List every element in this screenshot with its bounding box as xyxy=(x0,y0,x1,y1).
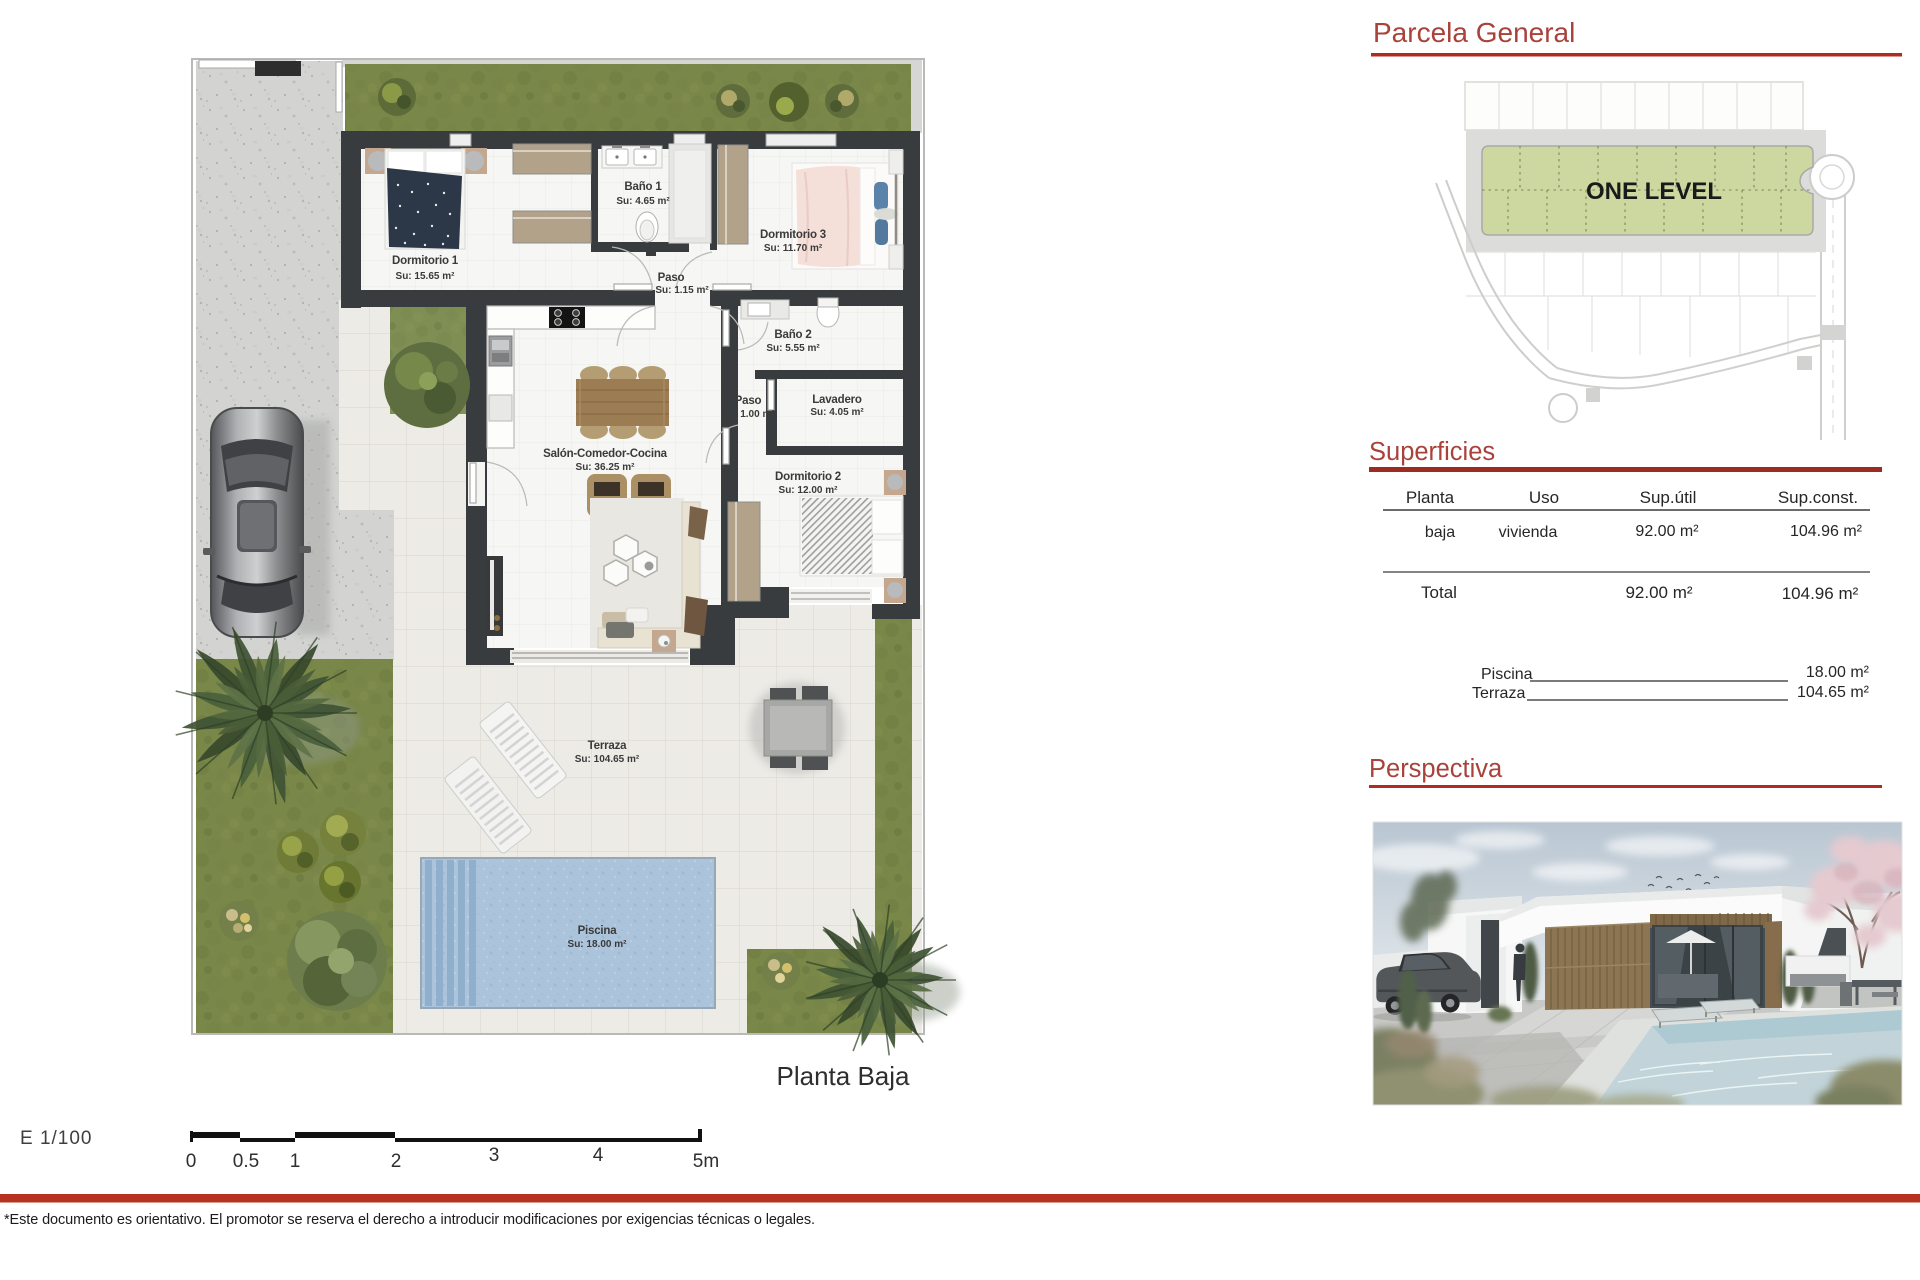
svg-text:Su: 5.55 m²: Su: 5.55 m² xyxy=(766,343,820,354)
svg-text:Lavadero: Lavadero xyxy=(812,394,862,406)
svg-text:Dormitorio 3: Dormitorio 3 xyxy=(760,229,826,241)
svg-text:Planta Baja: Planta Baja xyxy=(777,1061,911,1091)
svg-text:Su: 36.25 m²: Su: 36.25 m² xyxy=(576,462,636,473)
svg-text:Su: 4.05 m²: Su: 4.05 m² xyxy=(810,407,864,418)
svg-text:104.96 m²: 104.96 m² xyxy=(1782,584,1859,603)
svg-text:92.00 m²: 92.00 m² xyxy=(1625,583,1692,602)
svg-text:5m: 5m xyxy=(693,1151,719,1172)
svg-text:Su: 104.65 m²: Su: 104.65 m² xyxy=(575,754,640,765)
svg-text:Su: 1.15 m²: Su: 1.15 m² xyxy=(655,285,709,296)
svg-text:Paso: Paso xyxy=(735,395,762,407)
svg-text:Planta: Planta xyxy=(1406,488,1455,507)
svg-text:Sup.const.: Sup.const. xyxy=(1778,488,1858,507)
svg-text:Piscina: Piscina xyxy=(578,925,618,937)
svg-text:3: 3 xyxy=(489,1145,500,1166)
svg-text:Su: 4.65 m²: Su: 4.65 m² xyxy=(616,196,670,207)
svg-text:0.5: 0.5 xyxy=(233,1151,259,1172)
svg-text:Superficies: Superficies xyxy=(1369,438,1495,466)
svg-text:1: 1 xyxy=(290,1151,301,1172)
svg-text:Baño 2: Baño 2 xyxy=(774,329,811,341)
svg-text:baja: baja xyxy=(1425,524,1455,541)
svg-text:Salón-Comedor-Cocina: Salón-Comedor-Cocina xyxy=(543,448,668,460)
svg-text:2: 2 xyxy=(391,1151,402,1172)
svg-text:Su: 15.65 m²: Su: 15.65 m² xyxy=(396,271,456,282)
svg-text:Perspectiva: Perspectiva xyxy=(1369,755,1503,783)
svg-text:Dormitorio 2: Dormitorio 2 xyxy=(775,471,841,483)
svg-text:Terraza: Terraza xyxy=(588,740,627,752)
svg-text:Uso: Uso xyxy=(1529,488,1559,507)
svg-text:*Este documento es orientativo: *Este documento es orientativo. El promo… xyxy=(4,1212,815,1228)
svg-text:Piscina: Piscina xyxy=(1481,666,1533,683)
svg-text:Su: 12.00 m²: Su: 12.00 m² xyxy=(779,485,839,496)
svg-text:Su: 11.70 m²: Su: 11.70 m² xyxy=(764,243,823,254)
svg-text:92.00 m²: 92.00 m² xyxy=(1635,523,1699,540)
svg-text:Total: Total xyxy=(1421,583,1457,602)
svg-text:Parcela General: Parcela General xyxy=(1373,17,1575,48)
svg-text:Sup.útil: Sup.útil xyxy=(1640,488,1697,507)
svg-text:104.65 m²: 104.65 m² xyxy=(1797,684,1870,701)
svg-text:E 1/100: E 1/100 xyxy=(20,1128,93,1149)
svg-text:Dormitorio 1: Dormitorio 1 xyxy=(392,255,459,267)
svg-text:Su: 1.00 m²: Su: 1.00 m² xyxy=(721,409,775,420)
svg-text:Su: 18.00 m²: Su: 18.00 m² xyxy=(568,939,628,950)
svg-text:Paso: Paso xyxy=(658,272,685,284)
svg-text:4: 4 xyxy=(593,1145,604,1166)
svg-text:18.00 m²: 18.00 m² xyxy=(1806,664,1870,681)
svg-text:Baño 1: Baño 1 xyxy=(624,181,662,193)
svg-text:ONE LEVEL: ONE LEVEL xyxy=(1586,178,1722,205)
svg-text:Terraza: Terraza xyxy=(1472,685,1525,702)
svg-text:104.96 m²: 104.96 m² xyxy=(1790,523,1863,540)
svg-text:0: 0 xyxy=(186,1151,197,1172)
svg-text:vivienda: vivienda xyxy=(1499,524,1558,541)
